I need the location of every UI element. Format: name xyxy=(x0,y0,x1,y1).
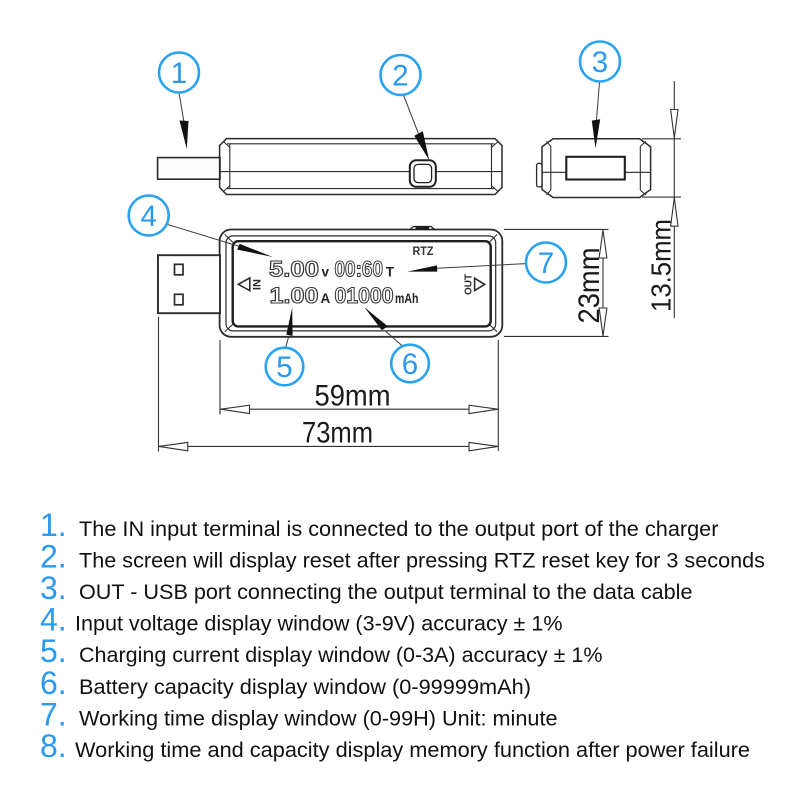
svg-text:The IN input terminal is conne: The IN input terminal is connected to th… xyxy=(79,518,719,541)
svg-text:59mm: 59mm xyxy=(315,379,391,412)
svg-text:13.5mm: 13.5mm xyxy=(645,219,676,312)
svg-text:Battery capacity display windo: Battery capacity display window (0-99999… xyxy=(79,676,531,699)
svg-text:1: 1 xyxy=(171,57,187,90)
svg-text:01000: 01000 xyxy=(335,283,394,308)
svg-text:Charging current display windo: Charging current display window (0-3A) a… xyxy=(79,644,603,667)
svg-text:OUT - USB port connecting the: OUT - USB port connecting the output ter… xyxy=(79,581,693,604)
svg-text:3: 3 xyxy=(592,46,608,79)
svg-text:00:60: 00:60 xyxy=(335,256,384,281)
svg-text:1.00: 1.00 xyxy=(270,283,319,308)
svg-text:A: A xyxy=(321,291,331,306)
svg-text:v: v xyxy=(322,264,330,279)
svg-text:Working time display window (0: Working time display window (0-99H) Unit… xyxy=(79,708,558,731)
svg-text:RTZ: RTZ xyxy=(413,246,434,258)
svg-text:4: 4 xyxy=(140,200,156,233)
svg-text:IN: IN xyxy=(252,279,264,290)
svg-text:Working time and capacity disp: Working time and capacity display memory… xyxy=(75,739,750,762)
svg-text:2: 2 xyxy=(392,60,408,93)
svg-text:mAh: mAh xyxy=(395,291,419,306)
svg-text:6: 6 xyxy=(402,348,418,381)
svg-text:Input voltage display window (: Input voltage display window (3-9V) accu… xyxy=(75,613,563,636)
svg-text:8.: 8. xyxy=(40,728,67,764)
svg-text:7: 7 xyxy=(538,247,554,280)
svg-text:23mm: 23mm xyxy=(573,248,606,324)
svg-text:The screen will display reset: The screen will display reset after pres… xyxy=(79,550,765,573)
svg-text:5: 5 xyxy=(276,351,292,384)
svg-text:5.: 5. xyxy=(40,633,67,669)
svg-text:73mm: 73mm xyxy=(302,416,373,449)
svg-text:5.00: 5.00 xyxy=(269,256,319,281)
svg-text:OUT: OUT xyxy=(463,274,474,295)
svg-text:T: T xyxy=(386,264,395,279)
